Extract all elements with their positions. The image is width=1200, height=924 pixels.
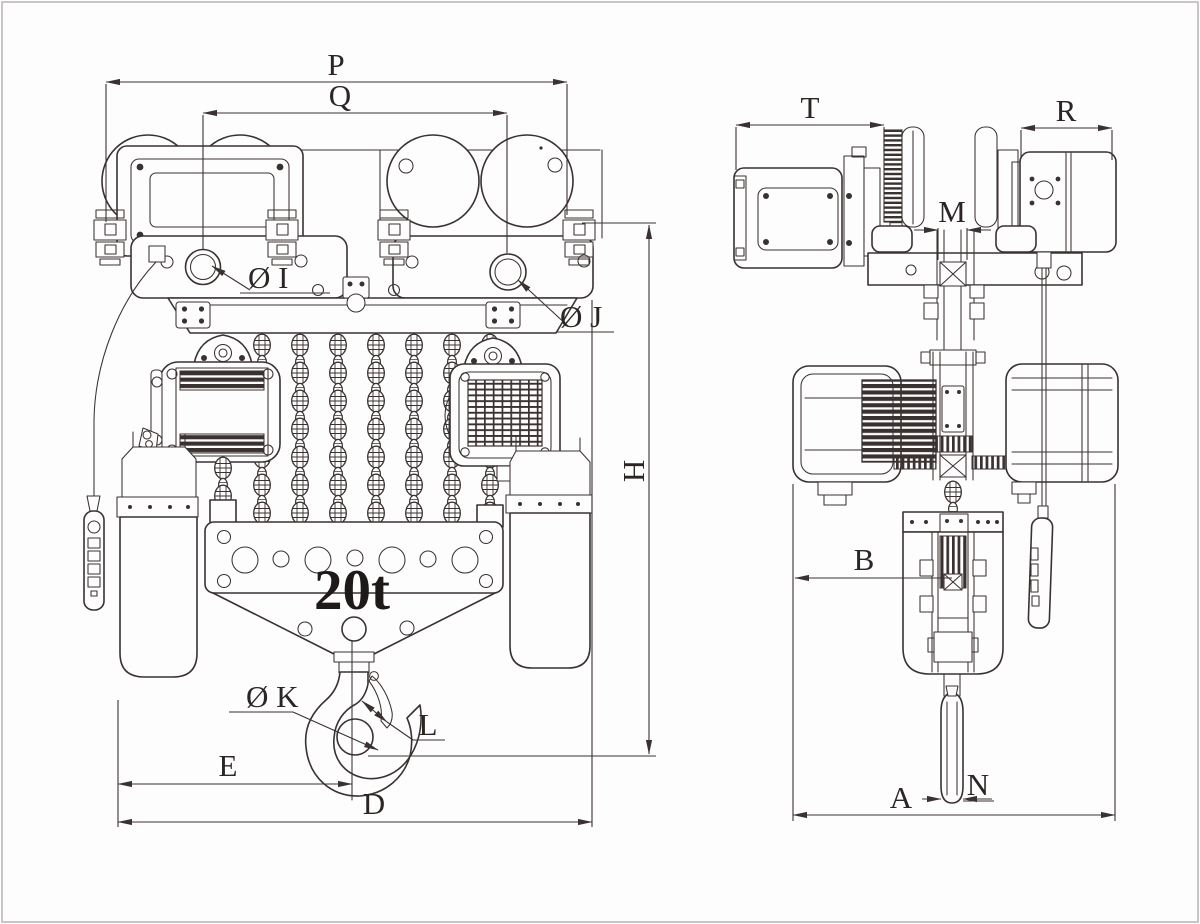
dim-label-l: L bbox=[419, 707, 438, 742]
clamp-block bbox=[996, 226, 1036, 252]
right-suspension-plate bbox=[393, 236, 593, 298]
rail-clamp bbox=[266, 210, 298, 265]
chain-bucket-right bbox=[506, 436, 592, 668]
rail-clamp bbox=[563, 210, 595, 265]
capacity-label: 20t bbox=[314, 559, 390, 622]
dim-label-b: B bbox=[854, 542, 875, 577]
clamp-block bbox=[872, 226, 912, 252]
suspension-crossbar bbox=[168, 298, 577, 333]
chain-anchor-block bbox=[210, 500, 236, 524]
hook-side bbox=[941, 674, 963, 803]
dim-label-q: Q bbox=[329, 78, 351, 113]
dim-label-p: P bbox=[327, 47, 344, 82]
dim-label-d: D bbox=[363, 786, 385, 821]
dim-label-k: Ø K bbox=[246, 679, 299, 714]
hoist-dimensional-drawing: 20t bbox=[0, 0, 1200, 924]
dim-label-a: A bbox=[890, 780, 913, 815]
dim-label-r: R bbox=[1056, 93, 1077, 128]
dim-label-n: N bbox=[967, 767, 989, 802]
chain-bucket-left bbox=[117, 432, 198, 677]
dim-label-j: Ø J bbox=[560, 299, 602, 334]
rail-clamp bbox=[94, 210, 126, 265]
trolley-motor-side bbox=[734, 168, 842, 268]
dim-label-t: T bbox=[801, 90, 820, 125]
dim-label-h: H bbox=[617, 460, 652, 482]
dim-label-i: Ø I bbox=[248, 260, 288, 295]
dim-label-e: E bbox=[219, 748, 238, 783]
drawing-page: 20t bbox=[0, 0, 1200, 924]
rail-clamp bbox=[378, 210, 410, 265]
hook-block-side bbox=[903, 512, 1003, 674]
dim-label-m: M bbox=[938, 194, 966, 229]
